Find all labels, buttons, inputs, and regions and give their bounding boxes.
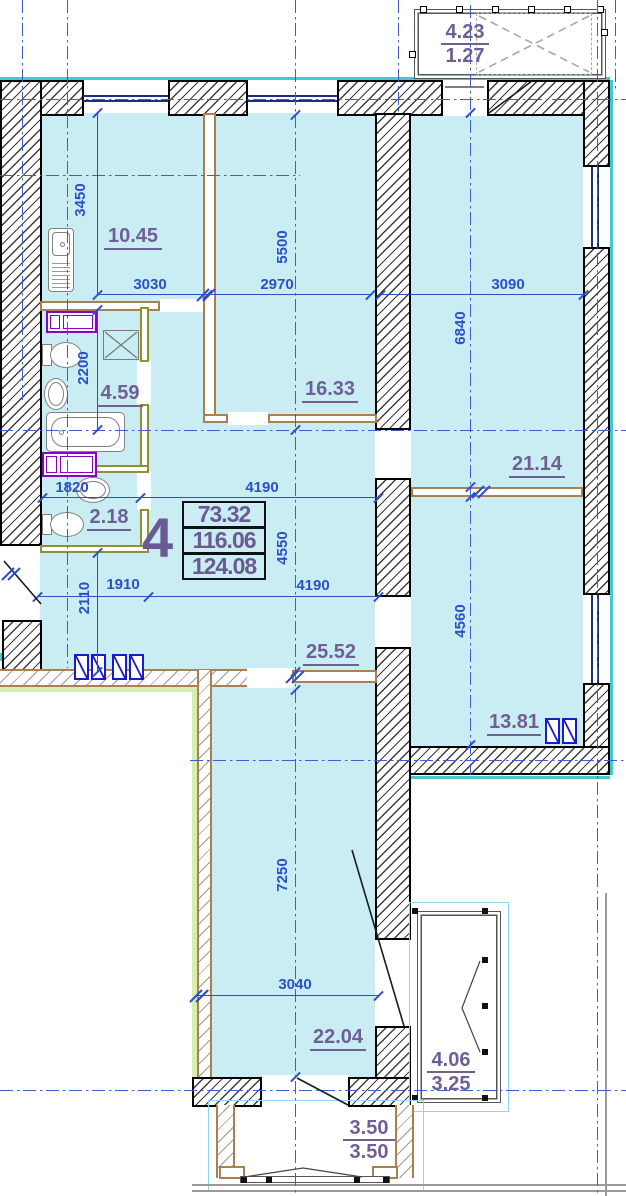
balcony-right-area-full: 4.06 (427, 1049, 475, 1073)
window-block-cell (562, 718, 577, 744)
ground-line-b (192, 1190, 626, 1192)
apartment-floor-plan: 3450 2200 2110 5500 4550 7250 6840 4560 … (0, 0, 626, 1196)
axis-line-v1 (22, 0, 23, 400)
room-label-living: 22.04 (310, 1026, 366, 1051)
dim-text-6840: 6840 (453, 298, 469, 358)
dim-text-3450: 3450 (73, 170, 89, 230)
partition-bedroom-top-2 (268, 414, 377, 423)
dim-break-mark (8, 568, 20, 580)
balcony-bottom-area-full: 3.50 (343, 1117, 395, 1141)
axis-line-v6 (597, 0, 598, 1196)
window-right-1-line-a (591, 167, 593, 247)
window-top-1-line-a (83, 95, 168, 97)
partition-bath-v2 (140, 404, 149, 472)
balcony-top-label: 4.23 1.27 (441, 21, 489, 67)
dim-text-3040: 3040 (265, 977, 325, 993)
door-opening-bedroom-br (375, 595, 411, 649)
facade-face-13-bottom (400, 776, 610, 779)
dim-text-3030: 3030 (120, 277, 180, 293)
railing-post (412, 908, 418, 914)
railing-post (482, 957, 488, 963)
summary-apartment-area: 116.06 (182, 527, 266, 554)
room-label-bedroom-top: 16.33 (302, 378, 358, 403)
balcony-bottom-area-counted: 3.50 (343, 1141, 395, 1163)
railing-post (456, 6, 463, 13)
outside-strip-v (192, 690, 197, 1077)
dim-text-2970: 2970 (247, 277, 307, 293)
railing-post (601, 29, 608, 36)
ground-line-a (192, 1184, 626, 1186)
axis-line-v7 (615, 0, 616, 90)
balcony-right-area-counted: 3.25 (427, 1073, 475, 1095)
axis-line-h2 (0, 175, 300, 176)
axis-line-h5 (0, 1090, 626, 1091)
railing-post (354, 1177, 360, 1183)
dim-line-3450 (97, 113, 98, 295)
window-block-cell (129, 654, 144, 680)
window-right-2-line-a (591, 595, 593, 683)
dim-text-2110: 2110 (77, 568, 93, 628)
door-opening-kitchen (160, 299, 203, 312)
partition-bedroom-top-1 (203, 414, 228, 423)
kitchen-sink-symbol (48, 228, 74, 292)
room-label-bedroom-right: 21.14 (509, 453, 565, 478)
dim-text-2200: 2200 (76, 338, 92, 398)
window-block-cell (74, 654, 89, 680)
dim-line-2110 (97, 553, 98, 672)
railing-post (482, 1003, 488, 1009)
apartment-number: 4 (142, 510, 173, 566)
partition-wc-bottom (40, 545, 149, 553)
balcony-top-area-counted: 1.27 (441, 45, 489, 67)
dim-line-3040 (196, 995, 378, 996)
window-top-1-line-b (83, 100, 168, 102)
railing-post (266, 1177, 272, 1183)
dim-text-5500: 5500 (275, 217, 291, 277)
partition-bedrooms-right (411, 487, 583, 497)
dim-text-3090: 3090 (478, 277, 538, 293)
balcony-bottom-label: 3.50 3.50 (343, 1117, 395, 1163)
balcony-top-shaft-area (476, 13, 592, 75)
summary-living-area: 73.32 (182, 501, 266, 528)
partition-bath-wc-divider (93, 465, 149, 473)
door-opening-balcony-top (443, 78, 487, 116)
wall-mid-1 (375, 113, 411, 430)
window-block-panel-13 (545, 718, 577, 744)
dim-text-7250: 7250 (275, 845, 291, 905)
door-opening-wc (137, 471, 151, 510)
dim-line-2970 (207, 294, 370, 295)
axis-line-v3 (295, 0, 296, 1196)
railing-post (241, 1177, 247, 1183)
dim-break-mark (2, 568, 14, 580)
wall-hall-bottom-right (292, 670, 377, 683)
partition-bath-v1 (140, 307, 149, 362)
window-block-cell (112, 654, 127, 680)
wall-top-pier-2 (168, 80, 248, 116)
wall-top-pier-3 (337, 80, 443, 116)
door-opening-bedroom-right (375, 428, 411, 480)
railing-post (482, 908, 488, 914)
dim-text-4560: 4560 (453, 591, 469, 651)
railing-post (482, 1095, 488, 1101)
railing-post (564, 6, 571, 13)
dim-text-1910: 1910 (93, 577, 153, 593)
window-top-2-line-a (248, 95, 337, 97)
ground-line-right (605, 893, 607, 1196)
window-block-panel-hall (74, 654, 144, 680)
dim-text-4190b: 4190 (283, 578, 343, 594)
ventilation-shaft-symbol (103, 330, 139, 360)
railing-post (420, 6, 427, 13)
dim-text-1820: 1820 (42, 480, 102, 496)
railing-post (492, 6, 499, 13)
room-label-kitchen: 10.45 (104, 225, 162, 250)
washing-machine-symbol-2 (42, 452, 97, 477)
wall-living-left (197, 670, 212, 1077)
dim-text-4550: 4550 (275, 518, 291, 578)
facade-face-right (610, 80, 613, 775)
dim-line-3090 (380, 294, 583, 295)
room-label-bedroom-br: 13.81 (487, 711, 541, 736)
summary-total-area: 124.08 (182, 553, 266, 580)
window-top-2-line-b (248, 100, 337, 102)
railing-post (528, 6, 535, 13)
balcony-bottom-railing (240, 1176, 390, 1183)
dim-line-3030 (97, 294, 207, 295)
partition-kitchen-vertical (203, 113, 216, 423)
door-opening-balcony-right (375, 938, 411, 1028)
axis-line-v4 (398, 0, 399, 112)
dim-line-4190b (148, 596, 378, 597)
axis-line-v2 (67, 0, 68, 668)
axis-line-h4 (190, 760, 626, 761)
railing-post (383, 1177, 389, 1183)
wall-mid-3 (375, 647, 411, 940)
axis-line-h1 (0, 99, 626, 100)
outside-strip-h (0, 687, 197, 692)
door-opening-living (247, 668, 293, 688)
room-label-wc: 2.18 (87, 506, 131, 531)
bathtub-symbol (46, 412, 125, 452)
axis-line-v5 (470, 5, 471, 775)
balcony-right-label: 4.06 3.25 (427, 1049, 475, 1095)
room-label-hall: 25.52 (303, 641, 359, 666)
dim-line-1820 (42, 497, 140, 498)
dim-line-2200 (97, 310, 98, 430)
room-label-bathroom: 4.59 (97, 382, 143, 407)
window-block-cell (545, 718, 560, 744)
dim-text-4190a: 4190 (232, 480, 292, 496)
wall-left-upper (0, 80, 42, 546)
balcony-top-area-full: 4.23 (441, 21, 489, 45)
railing-post (482, 1049, 488, 1055)
washbasin-symbol-1 (44, 378, 68, 410)
dim-line-4190a (140, 497, 378, 498)
washing-machine-symbol-1 (46, 311, 97, 333)
railing-post (409, 51, 416, 58)
door-opening-bedroom-top (228, 412, 268, 425)
